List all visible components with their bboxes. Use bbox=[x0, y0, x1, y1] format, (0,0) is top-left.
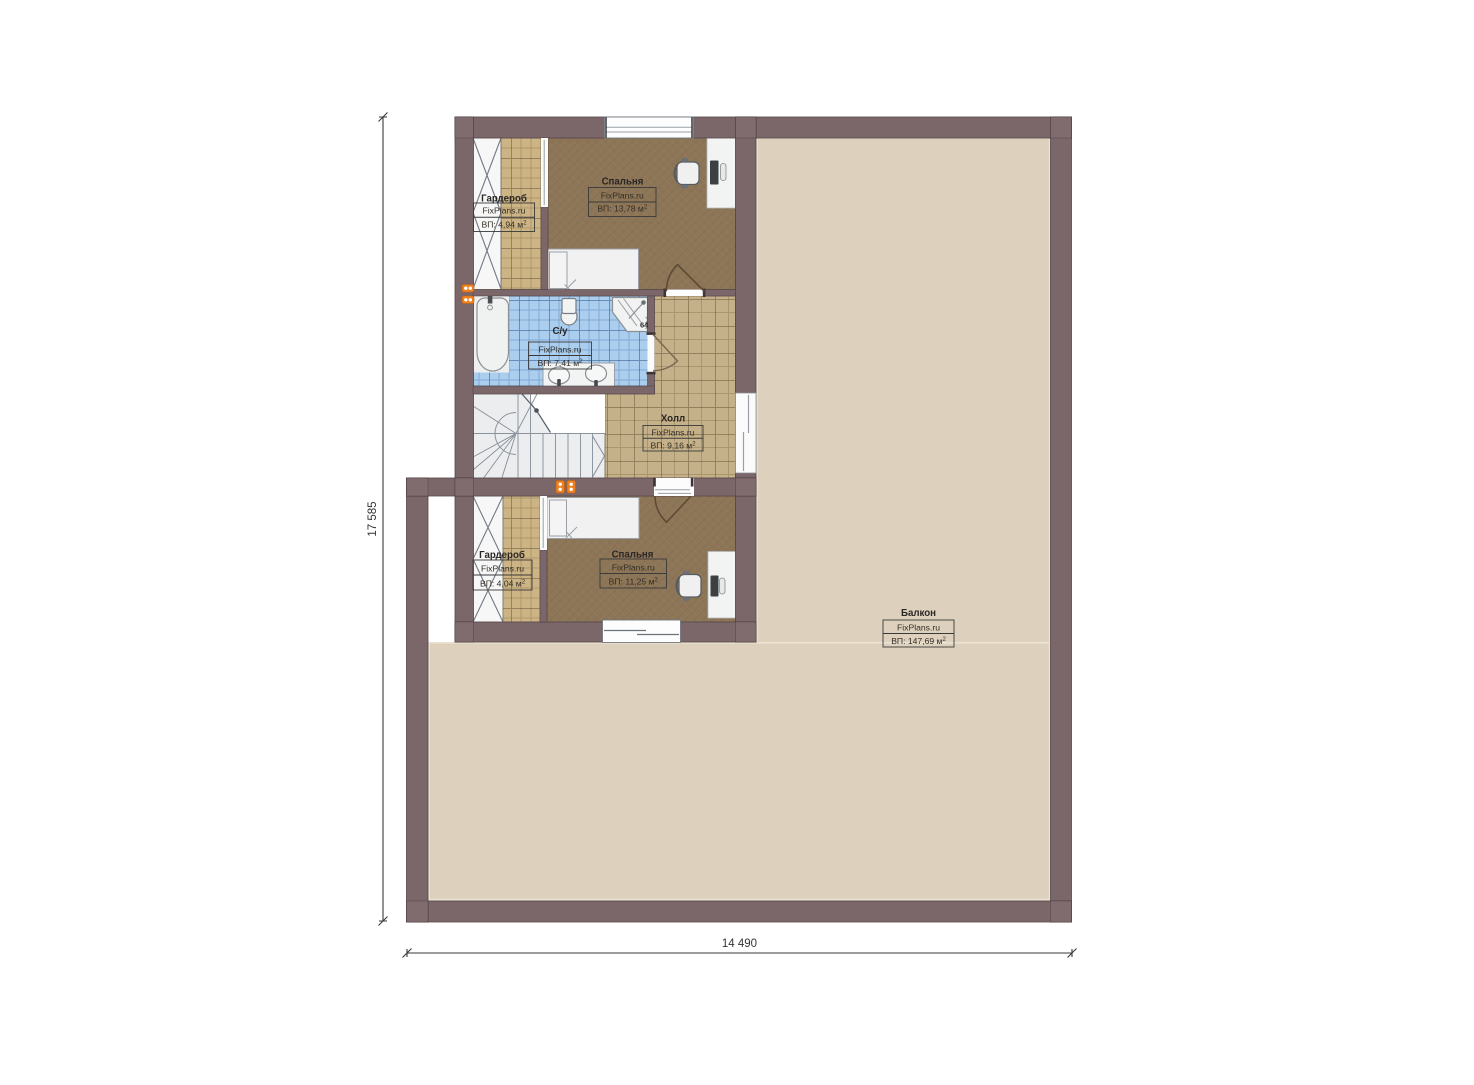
svg-text:ВП: 147,69 м2: ВП: 147,69 м2 bbox=[891, 636, 946, 646]
svg-text:ВП: 11,25 м2: ВП: 11,25 м2 bbox=[609, 577, 659, 587]
svg-text:FixPlans.ru: FixPlans.ru bbox=[601, 191, 644, 201]
svg-text:ВП: 4,94 м2: ВП: 4,94 м2 bbox=[481, 220, 527, 230]
svg-text:FixPlans.ru: FixPlans.ru bbox=[652, 428, 695, 438]
svg-text:ВП: 4,04 м2: ВП: 4,04 м2 bbox=[480, 579, 526, 589]
svg-text:FixPlans.ru: FixPlans.ru bbox=[539, 345, 582, 355]
svg-text:Спальня: Спальня bbox=[602, 177, 644, 188]
svg-text:ВП: 13,78 м2: ВП: 13,78 м2 bbox=[597, 204, 648, 214]
svg-text:ВП: 9,16 м2: ВП: 9,16 м2 bbox=[650, 441, 696, 451]
svg-text:64: 64 bbox=[640, 321, 649, 330]
svg-text:Балкон: Балкон bbox=[901, 608, 936, 619]
svg-text:Холл: Холл bbox=[661, 414, 685, 425]
svg-text:ВП: 7,41 м2: ВП: 7,41 м2 bbox=[537, 358, 583, 368]
svg-text:FixPlans.ru: FixPlans.ru bbox=[612, 563, 655, 573]
svg-text:FixPlans.ru: FixPlans.ru bbox=[897, 623, 940, 633]
svg-text:17 585: 17 585 bbox=[367, 501, 379, 536]
svg-text:С/у: С/у bbox=[552, 326, 568, 337]
svg-text:14 490: 14 490 bbox=[722, 938, 757, 950]
svg-text:Гардероб: Гардероб bbox=[479, 550, 525, 561]
svg-text:FixPlans.ru: FixPlans.ru bbox=[483, 206, 526, 216]
svg-text:FixPlans.ru: FixPlans.ru bbox=[481, 564, 524, 574]
